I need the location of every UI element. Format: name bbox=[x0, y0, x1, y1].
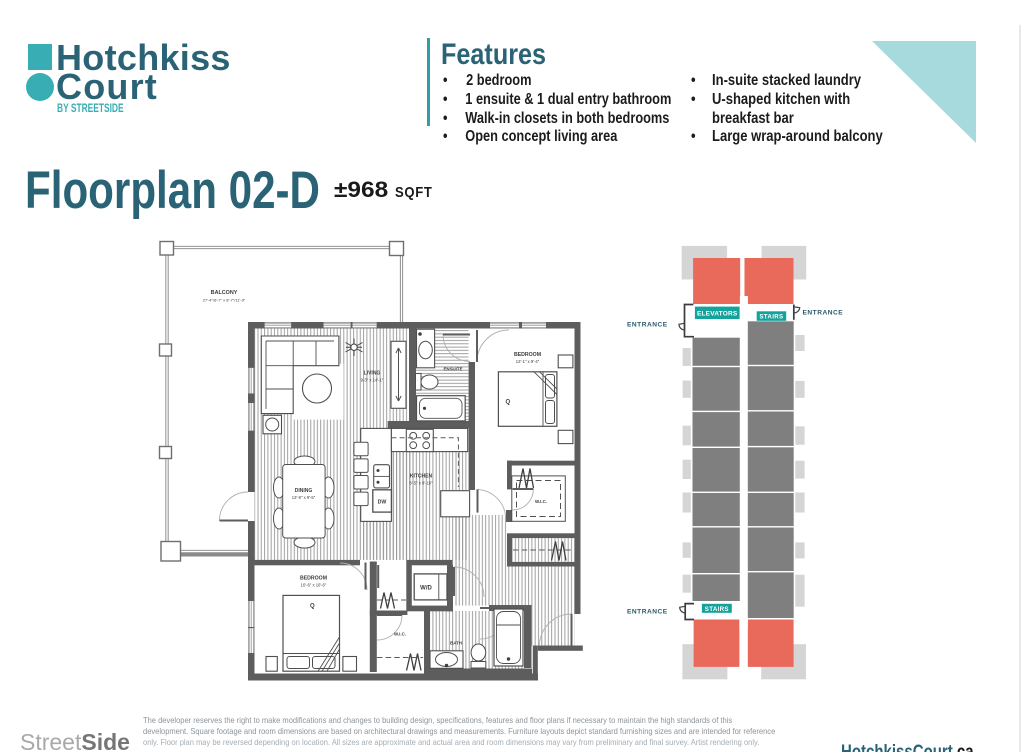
svg-text:ENTRANCE: ENTRANCE bbox=[803, 310, 844, 317]
svg-text:12'-1" x 9'-4": 12'-1" x 9'-4" bbox=[516, 359, 540, 364]
svg-text:W/D: W/D bbox=[420, 586, 432, 592]
svg-text:Q: Q bbox=[310, 604, 315, 610]
svg-text:STAIRS: STAIRS bbox=[705, 606, 729, 613]
svg-text:ENTRANCE: ENTRANCE bbox=[627, 321, 668, 328]
svg-text:BALCONY: BALCONY bbox=[211, 290, 238, 296]
svg-text:9-3" x 14'-1": 9-3" x 14'-1" bbox=[361, 378, 384, 383]
svg-text:W.I.C.: W.I.C. bbox=[535, 499, 547, 504]
svg-text:BEDROOM: BEDROOM bbox=[514, 352, 541, 358]
svg-text:10'-6" x 10'-6": 10'-6" x 10'-6" bbox=[301, 583, 327, 588]
svg-text:13'-9" x 9'-5": 13'-9" x 9'-5" bbox=[292, 495, 316, 500]
svg-text:KITCHEN: KITCHEN bbox=[410, 474, 433, 480]
svg-text:Q: Q bbox=[506, 400, 511, 406]
svg-text:LIVING: LIVING bbox=[364, 371, 381, 377]
svg-text:27'-4"/6'-7" x 8'-7"/11'-9": 27'-4"/6'-7" x 8'-7"/11'-9" bbox=[203, 298, 246, 303]
svg-text:8'-5" x 9'-10": 8'-5" x 9'-10" bbox=[409, 481, 433, 486]
svg-text:BATH: BATH bbox=[450, 641, 462, 646]
svg-text:DINING: DINING bbox=[295, 488, 313, 494]
svg-text:STAIRS: STAIRS bbox=[759, 314, 783, 321]
svg-text:W.I.C.: W.I.C. bbox=[394, 632, 406, 637]
svg-text:ENSUITE: ENSUITE bbox=[443, 367, 462, 372]
svg-text:ENTRANCE: ENTRANCE bbox=[627, 608, 668, 615]
svg-text:DW: DW bbox=[378, 500, 387, 506]
svg-text:ELEVATORS: ELEVATORS bbox=[697, 311, 738, 318]
svg-text:BEDROOM: BEDROOM bbox=[300, 576, 327, 582]
